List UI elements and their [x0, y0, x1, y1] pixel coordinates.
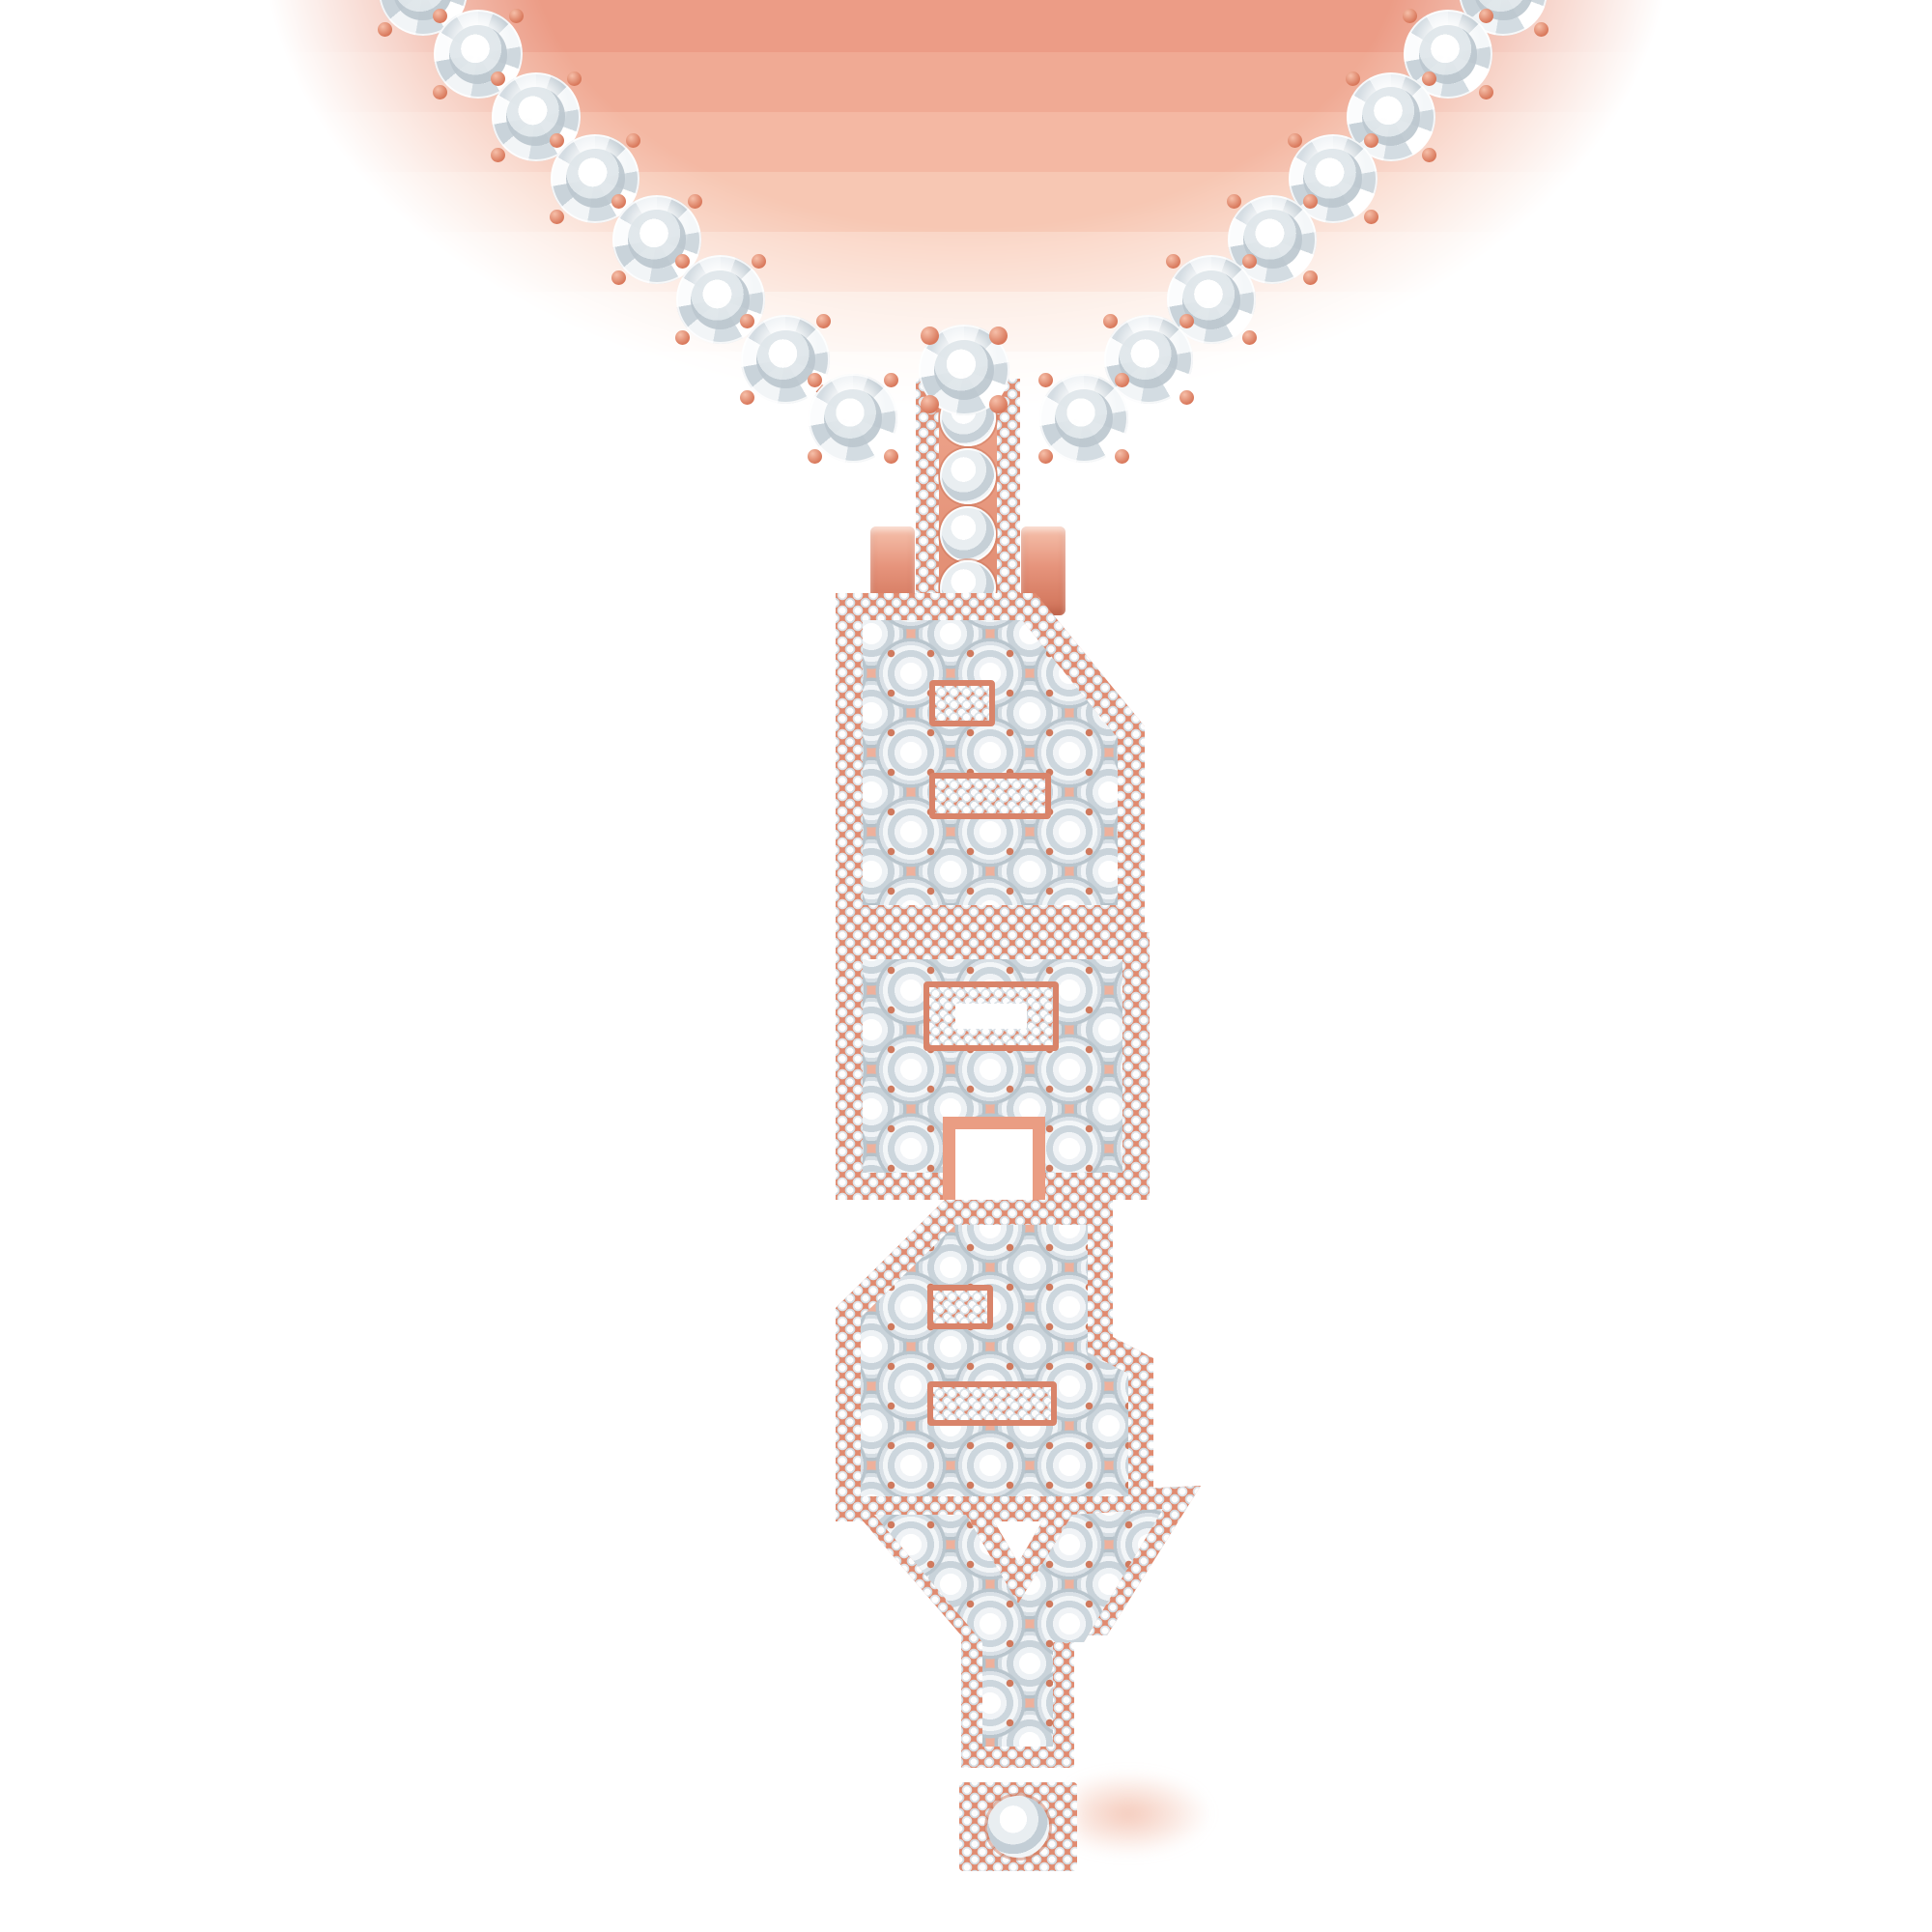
prong-ball [550, 210, 564, 224]
chain-stone [1039, 374, 1128, 463]
chain-stone [809, 374, 897, 463]
prong-ball [1115, 449, 1129, 464]
prong-ball [1242, 254, 1257, 269]
prong-ball [1346, 71, 1360, 86]
prong-ball [884, 373, 898, 387]
letter-counter [923, 981, 1059, 1051]
prong-ball [378, 22, 392, 37]
prong-ball [611, 270, 626, 285]
prong-ball [808, 449, 822, 464]
prong-ball [550, 133, 564, 148]
prong-ball [675, 330, 690, 345]
prong-ball [884, 449, 898, 464]
prong-ball [808, 373, 822, 387]
prong-ball [1179, 390, 1194, 405]
prong-ball [567, 71, 582, 86]
letter-counter [927, 1285, 993, 1329]
prong-ball [1364, 133, 1378, 148]
tip-shadow [1074, 1773, 1209, 1855]
prong-ball [1103, 314, 1118, 328]
prong-ball [688, 194, 702, 209]
prong-ball [1288, 133, 1302, 148]
letter-counter-slot [955, 1004, 1027, 1029]
prong-ball [1364, 210, 1378, 224]
letter-a-notch [943, 1117, 1045, 1200]
prong-ball [752, 254, 766, 269]
prong-ball [491, 71, 505, 86]
prong-ball [1403, 9, 1417, 23]
bail-stone [940, 448, 996, 504]
prong-ball [1038, 449, 1053, 464]
bail-pave-left [916, 379, 939, 612]
prong-ball [1422, 148, 1436, 162]
prong-ball [1479, 9, 1493, 23]
prong-ball [1179, 314, 1194, 328]
prong-ball [626, 133, 640, 148]
prong-ball [611, 194, 626, 209]
product-photo [0, 0, 1932, 1932]
prong-ball [1038, 373, 1053, 387]
prong-ball [1166, 254, 1180, 269]
prong-ball [1422, 71, 1436, 86]
letter-counter [929, 680, 995, 726]
bail-stone [940, 506, 996, 562]
bail-pave-right [997, 379, 1020, 612]
bail-top-stone [919, 325, 1009, 415]
prong-ball [1242, 330, 1257, 345]
letter-counter [927, 1381, 1057, 1426]
prong-ball [1479, 85, 1493, 99]
letter-y-tip-stone [987, 1796, 1049, 1858]
letter-counter [929, 773, 1051, 819]
prong-ball [1115, 373, 1129, 387]
prong-ball [491, 148, 505, 162]
prong-ball [675, 254, 690, 269]
